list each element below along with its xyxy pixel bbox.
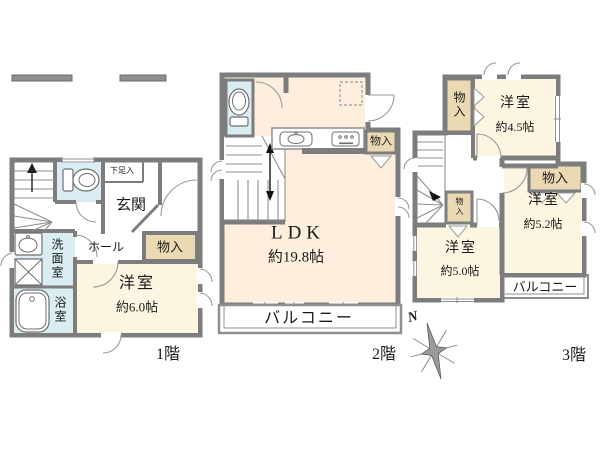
label-shoe-storage: 下足入 [110, 167, 134, 175]
label-ldk-size: 約19.8帖 [268, 251, 324, 266]
floor1-plan [1, 157, 212, 353]
site-bar-1 [12, 75, 72, 81]
label-bedroom-50: 洋室 [445, 242, 477, 256]
label-bedroom-52: 洋室 [528, 194, 560, 208]
label-floor3: 3階 [562, 348, 586, 364]
label-bedroom-1f-size: 約6.0帖 [116, 301, 158, 314]
room-bedroom-45 [475, 79, 556, 156]
label-bedroom-45-size: 約4.5帖 [495, 121, 534, 133]
sink-icon [15, 233, 42, 255]
room-bedroom-50 [417, 227, 500, 298]
floor2-plan [211, 75, 409, 333]
label-storage-2f: 物入 [370, 137, 392, 148]
toilet-icon-1f [63, 169, 99, 191]
stairs-3f-icon [417, 142, 443, 223]
label-balcony-2f: バルコニー [264, 311, 354, 327]
label-bathroom: 浴室 [54, 296, 66, 324]
label-bedroom-45: 洋室 [500, 97, 532, 111]
bathtub-icon [16, 290, 49, 332]
label-balcony-3f: バルコニー [513, 281, 578, 294]
site-bar-2 [120, 75, 166, 81]
label-floor2: 2階 [372, 347, 396, 363]
label-hall: ホール [88, 241, 124, 253]
kitchen-counter [272, 128, 364, 149]
label-storage-mid-3f: 物入 [542, 172, 568, 185]
site-outline-bars [12, 75, 166, 81]
stairs-arrow-icon [429, 191, 441, 201]
label-bedroom-50-size: 約5.0帖 [440, 265, 479, 277]
floor-plan-canvas: 下足入 玄関 ホール 物入 洗面室 浴室 洋室 約6.0帖 1階 LDK 約19… [0, 0, 600, 450]
washing-machine-icon [15, 259, 42, 285]
compass-rose-icon [404, 317, 465, 385]
label-washroom: 洗面室 [51, 238, 63, 280]
label-storage-top-3f: 物入 [453, 91, 465, 119]
label-bedroom-1f: 洋室 [119, 276, 155, 292]
stairs-up-arrow-icon [27, 163, 37, 173]
label-storage-1f: 物入 [157, 241, 183, 254]
label-ldk: LDK [271, 224, 325, 243]
toilet-icon-2f [229, 89, 249, 126]
stairs-1f-icon [14, 163, 55, 231]
label-storage-small-3f: 物入 [455, 197, 463, 217]
label-bedroom-52-size: 約5.2帖 [523, 218, 562, 230]
label-genkan: 玄関 [116, 199, 146, 214]
label-floor1: 1階 [156, 347, 180, 363]
